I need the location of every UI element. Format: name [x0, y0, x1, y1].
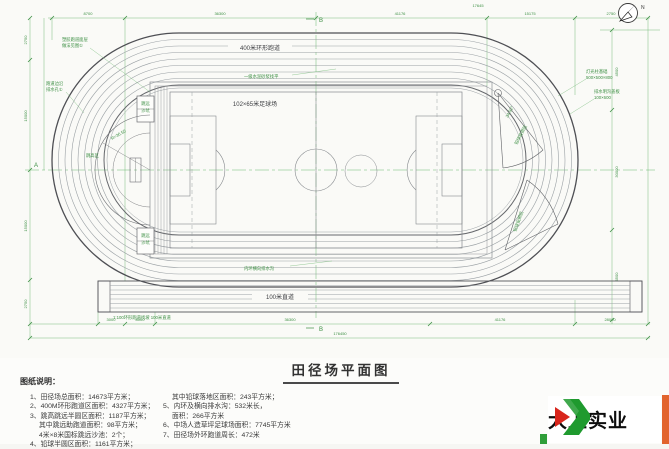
dim-left-1: 15000 — [23, 110, 28, 122]
notes-column-right: 其中铅球落地区面积：243平方米； 5、内环及横向排水沟：532米长， 面积：2… — [163, 393, 393, 440]
section-marker-left: A — [34, 163, 38, 169]
pit-label-bottom-1: 跳远 — [141, 232, 150, 239]
dim-top-total: 17645 — [472, 3, 484, 8]
dim-bottom-total: 176450 — [333, 331, 347, 336]
callout-left-mid-2: 排水孔① — [46, 86, 63, 93]
dim-top-3: 15175 — [524, 11, 536, 16]
long-jump-pits — [137, 96, 154, 254]
company-logo: 大上实业 — [548, 396, 661, 443]
dim-left-3: 2750 — [23, 299, 28, 309]
note-line: 2、400M环形跑道区面积：4327平方米； — [30, 402, 180, 411]
note-line: 面积：266平方米 — [163, 412, 393, 421]
north-arrow-icon: N — [619, 4, 646, 23]
note-line: 6、中场人造草坪足球场面积：7745平方米 — [163, 421, 393, 430]
note-line: 4、铅球半圆区面积：1161平方米； — [30, 440, 180, 449]
dim-right-0: 4500 — [614, 67, 619, 77]
inner-bottom-label: 内环横向排水沟 — [244, 265, 274, 272]
notes-section: 图纸说明： 1、田径场总面积：14673平方米； 2、400M环形跑道区面积：4… — [20, 376, 560, 387]
callout-right-1a: 灯光柱基础 — [586, 68, 607, 75]
slope-note: 1:100环形跑道找坡 100米直道 — [113, 314, 171, 321]
pit-label-top-1: 跳远 — [141, 100, 150, 107]
straight-track-label: 100米直道 — [266, 293, 294, 301]
note-line: 1、田径场总面积：14673平方米； — [30, 393, 180, 402]
dimension-lines — [25, 12, 660, 340]
callout-right-2a: 排水明沟盖板 — [594, 88, 620, 95]
callout-right-1b: 500×500×800 — [586, 75, 613, 80]
note-line: 其中跳远助跑道面积：98平方米； — [30, 421, 180, 430]
straight-track — [98, 281, 642, 312]
dim-left-0: 2750 — [23, 35, 28, 45]
dim-right-2: 4500 — [614, 272, 619, 282]
orange-edge-strip — [662, 395, 669, 444]
dim-top-1: 36300 — [214, 11, 226, 16]
company-logo-icon — [548, 396, 590, 438]
notes-column-left: 1、田径场总面积：14673平方米； 2、400M环形跑道区面积：4327平方米… — [30, 393, 180, 449]
dim-top-4: 2750 — [607, 11, 617, 16]
note-line: 4米×8米国标跳远沙池：2个； — [30, 431, 180, 440]
section-marker-top: B — [319, 18, 323, 24]
dim-top-0: 8700 — [84, 11, 94, 16]
notes-heading: 图纸说明： — [20, 376, 560, 387]
dim-bottom-3: 41176 — [495, 317, 507, 322]
field-label: 102×65米足球场 — [233, 100, 277, 108]
dim-top-2: 41176 — [395, 11, 407, 16]
running-track — [52, 33, 578, 287]
logo-triangle-red — [555, 407, 570, 427]
pit-label-bottom-2: 沙坑 — [141, 239, 150, 246]
high-jump-label: 跳高区 — [86, 152, 100, 159]
pit-label-top-2: 沙坑 — [141, 107, 150, 114]
dimension-numbers: 8700 36300 41176 15175 2750 17645 2750 1… — [23, 3, 619, 336]
section-marker-bottom: B — [319, 327, 323, 333]
callouts: 塑胶跑道面层 做法见图① 跑道边沿 排水孔① 灯光柱基础 500×500×800… — [46, 36, 620, 114]
note-line: 其中铅球落地区面积：243平方米； — [163, 393, 393, 402]
callout-left-mid-1: 跑道边沿 — [46, 80, 64, 87]
dim-bottom-2: 36300 — [284, 317, 296, 322]
site-plan-drawing: 8700 36300 41176 15175 2750 17645 2750 1… — [0, 0, 669, 360]
callout-right-2b: 100×600 — [594, 95, 611, 100]
sector-angle-label: 34.92° — [504, 105, 514, 119]
note-line: 7、田径场外环跑道周长：472米 — [163, 431, 393, 440]
green-edge-fragment — [540, 434, 547, 444]
note-line: 5、内环及横向排水沟：532米长， — [163, 402, 393, 411]
north-letter: N — [641, 5, 645, 11]
dim-left-2: 15000 — [23, 220, 28, 232]
dim-right-1: 30000 — [614, 166, 619, 178]
inner-top-label: 一级水泥砂浆找平 — [244, 73, 279, 80]
dim-bottom-4: 28000 — [604, 317, 616, 322]
callout-left-top-1: 塑胶跑道面层 — [62, 36, 88, 43]
track-label: 400米环形跑道 — [240, 44, 280, 52]
note-line: 3、跳高跳远半圆区面积：1187平方米； — [30, 412, 180, 421]
callout-left-top-2: 做法见图① — [62, 42, 83, 49]
